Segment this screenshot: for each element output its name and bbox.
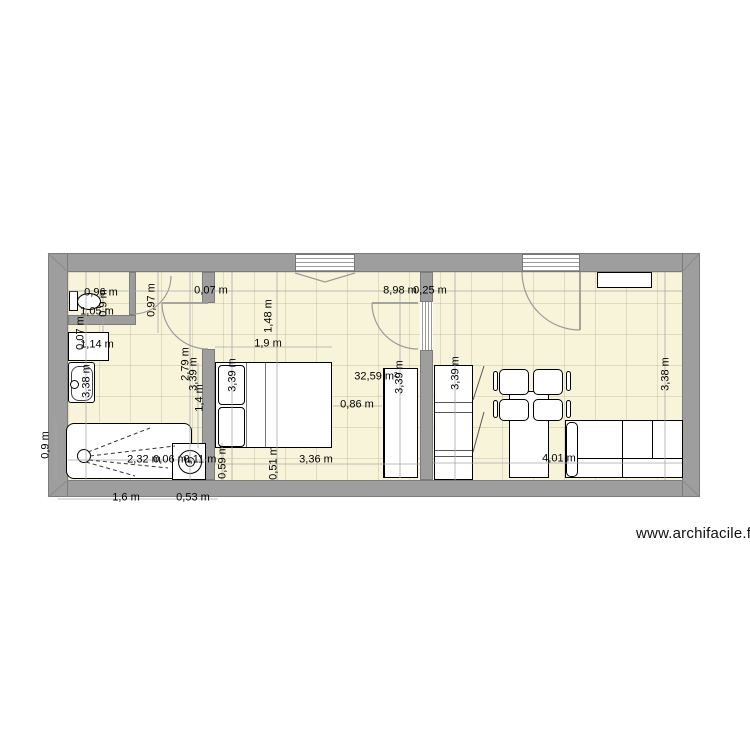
- wall-shelf-icon: [597, 272, 652, 288]
- dining-chair-icon: [499, 369, 529, 395]
- wall-bottom: [48, 480, 700, 497]
- dining-chair-icon: [533, 399, 563, 421]
- dimension-label: 1,4 m: [195, 384, 206, 412]
- chair-armrest-icon: [566, 371, 571, 391]
- chair-armrest-icon: [493, 400, 498, 418]
- living-french-door-window-icon: [522, 254, 580, 272]
- pillow-icon: [218, 407, 245, 447]
- dining-chair-icon: [499, 399, 529, 421]
- shower-head-icon: [77, 449, 91, 463]
- glazed-partition-icon: [420, 302, 433, 350]
- sofa-cushion-line: [622, 421, 623, 458]
- wall-top: [48, 253, 700, 272]
- bedroom-window-icon: [295, 254, 355, 272]
- dimension-label: 3,39 m: [228, 358, 239, 392]
- dimension-label: 3,36 m: [299, 455, 333, 466]
- chair-armrest-icon: [493, 371, 498, 391]
- sofa-cushion-line: [652, 421, 653, 458]
- dimension-label: 4,01 m: [542, 454, 576, 465]
- closet-shelf-line: [435, 450, 472, 451]
- bed-sheet-line: [246, 363, 247, 447]
- dimension-label: 0,51 m: [269, 446, 280, 480]
- wall-wc-vertical: [129, 272, 136, 315]
- closet-shelf-line: [435, 402, 472, 403]
- closet-shelf-line: [435, 456, 472, 457]
- sofa-seat-line: [578, 458, 682, 459]
- dimension-label: 1,6 m: [112, 493, 140, 504]
- watermark: www.archifacile.fr: [636, 525, 746, 542]
- dimension-label: 3,39 m: [451, 356, 462, 390]
- dimension-label: 0,25 m: [413, 286, 447, 297]
- dining-chair-icon: [533, 369, 563, 395]
- wall-left: [48, 253, 68, 497]
- dimension-label: 0,06 m: [153, 455, 187, 466]
- washbasin-tap-icon: [70, 380, 79, 389]
- chair-armrest-icon: [566, 400, 571, 418]
- area-label: 32,59 m²: [354, 372, 397, 383]
- dimension-label: 0,97 m: [147, 283, 158, 317]
- dimension-label: 0,53 m: [176, 493, 210, 504]
- closet-shelf-line: [435, 412, 472, 413]
- dimension-label: 3,39 m: [395, 360, 406, 394]
- dimension-label: 1,14 m: [80, 340, 114, 351]
- dimension-label: 0,11 m: [184, 455, 217, 466]
- dimension-label: 1,48 m: [264, 299, 275, 333]
- dimension-label: 3,38 m: [82, 364, 93, 398]
- dimension-label: 0,9 m: [41, 431, 52, 459]
- sofa-armrest-icon: [566, 422, 578, 477]
- bed-sheet-line: [265, 363, 266, 447]
- dimension-label: 0,86 m: [340, 400, 374, 411]
- sofa-seat-divider-line: [622, 459, 623, 477]
- floorplan-canvas: 0,96 m0,9 m1,05 m0,07 m1,14 m0,97 m3,38 …: [0, 0, 750, 750]
- wall-right: [682, 253, 700, 497]
- dimension-label: 0,07 m: [194, 286, 228, 297]
- wall-bedroom-living-lower: [420, 350, 433, 480]
- dimension-label: 1,9 m: [254, 339, 282, 350]
- sofa-icon: [565, 420, 683, 478]
- dimension-label: 0,59 m: [218, 445, 229, 479]
- dimension-label: 8,98 m: [383, 286, 417, 297]
- dimension-label: 3,38 m: [661, 357, 672, 391]
